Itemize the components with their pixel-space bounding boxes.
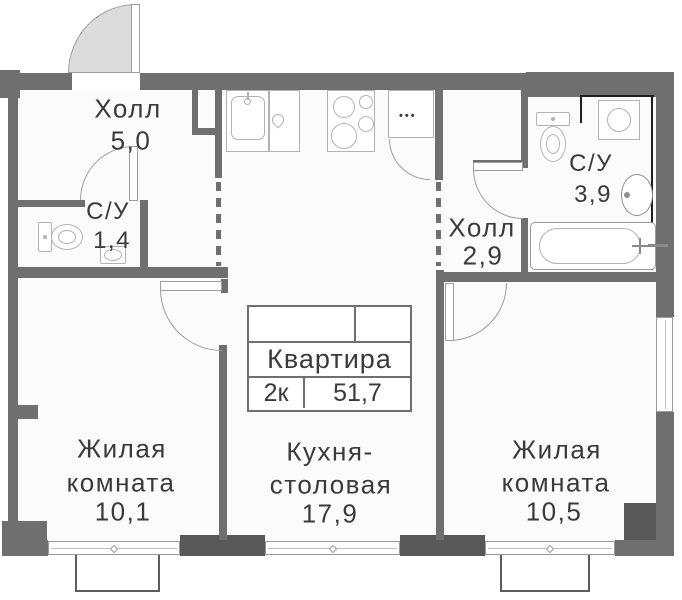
wall-top-right: [526, 72, 674, 97]
window-kitchen: [265, 541, 400, 555]
shaft-line-left: [580, 95, 582, 123]
stove-burner-large-1: [333, 96, 355, 118]
toilet-bowl-inner: [58, 230, 76, 244]
kitchen-counter-divider: [268, 90, 270, 152]
window-frame-line: [665, 320, 666, 409]
wall-hall5-bottom: [18, 267, 228, 278]
toilet-tank2-dot: [551, 117, 555, 121]
wall-left-pier: [8, 405, 38, 419]
hall5-area: 5,0: [111, 126, 152, 157]
shaft-line-top: [580, 95, 654, 97]
su39-label: С/У: [569, 150, 613, 178]
toilet2-bowl-inner: [546, 134, 560, 154]
wall-room101-kitchen: [219, 345, 227, 540]
washbasin-faucet-dot: [624, 192, 630, 198]
room101-label-line2: комната: [67, 468, 176, 499]
wall-right-lower: [656, 412, 674, 556]
room101-area: 10,1: [95, 497, 152, 528]
kitchen-label-line1: Кухня-: [286, 437, 373, 468]
apartment-card-bottom-row: 2к 51,7: [249, 378, 410, 408]
wall-corner-bottom-right-inner: [624, 503, 656, 543]
bathtub-faucet-cross-v: [639, 238, 641, 254]
apartment-card-divider: [354, 307, 356, 341]
fridge-dots: •••: [399, 110, 417, 122]
room101-label-line1: Жилая: [77, 434, 167, 465]
toilet-tank-dot: [43, 235, 47, 239]
door-leaf-room101: [160, 281, 222, 291]
door-leaf-bath39: [473, 162, 523, 171]
washing-machine-drum: [607, 108, 631, 132]
hall29-area: 2,9: [463, 241, 504, 272]
bathtub-tap-stub: [648, 244, 668, 247]
su39-area: 3,9: [574, 181, 612, 209]
apartment-card-rooms: 2к: [249, 378, 305, 408]
window-tick: [110, 545, 118, 553]
wall-bath14-right: [140, 200, 148, 273]
wall-bath39-left-upper: [521, 90, 528, 167]
window-tick: [546, 545, 554, 553]
apartment-card-title: Квартира: [249, 343, 410, 378]
entry-door-leaf: [131, 4, 140, 73]
balcony-left: [75, 555, 160, 592]
wall-bottom-seg2: [615, 540, 674, 556]
room105-label-line2: комната: [502, 468, 611, 499]
window-right-wall: [656, 317, 673, 412]
apartment-card: Квартира 2к 51,7: [247, 305, 412, 412]
wall-left: [8, 73, 18, 556]
kitchen-boundary-dashed-left: [216, 182, 221, 266]
stove-burner-small-2: [358, 116, 374, 132]
kitchen-area: 17,9: [302, 499, 359, 530]
window-tick: [329, 545, 337, 553]
kitchen-boundary-dashed-right: [436, 182, 441, 266]
stove-burner-large-2: [331, 123, 357, 149]
balcony-right: [500, 555, 590, 592]
vent-shaft-bottom-wall: [192, 128, 222, 135]
hall5-label: Холл: [94, 94, 161, 125]
apartment-card-empty-row: [249, 307, 410, 343]
stove-burner-small-1: [359, 95, 373, 109]
sink-faucet-stem: [247, 92, 249, 100]
hall29-label: Холл: [448, 213, 515, 244]
entry-door-swing: [68, 4, 136, 73]
wall-bath39-left-lower: [521, 218, 528, 272]
window-room105: [485, 541, 615, 555]
wall-door101-endcap: [221, 279, 228, 293]
floor-plan: ••• Холл 5,0 С/У 1,4 Холл 2,9 С/У 3,9 Ку…: [0, 0, 682, 600]
door-leaf-room105: [445, 283, 454, 341]
su14-label: С/У: [86, 198, 130, 226]
wall-kitchen-room105: [436, 270, 444, 540]
wall-bottom-seg1: [8, 540, 48, 556]
su14-area: 1,4: [93, 227, 131, 255]
bathtub-basin: [539, 228, 641, 264]
room105-area: 10,5: [526, 497, 583, 528]
apartment-card-area: 51,7: [305, 378, 410, 408]
kitchen-label-line2: столовая: [270, 470, 393, 501]
wall-right-upper: [656, 72, 674, 317]
room105-label-line1: Жилая: [512, 435, 602, 466]
wall-bath14-top: [18, 200, 85, 207]
wall-kitchen-hall29: [435, 85, 443, 180]
wall-room105-top: [442, 272, 656, 282]
window-room101: [48, 541, 180, 555]
